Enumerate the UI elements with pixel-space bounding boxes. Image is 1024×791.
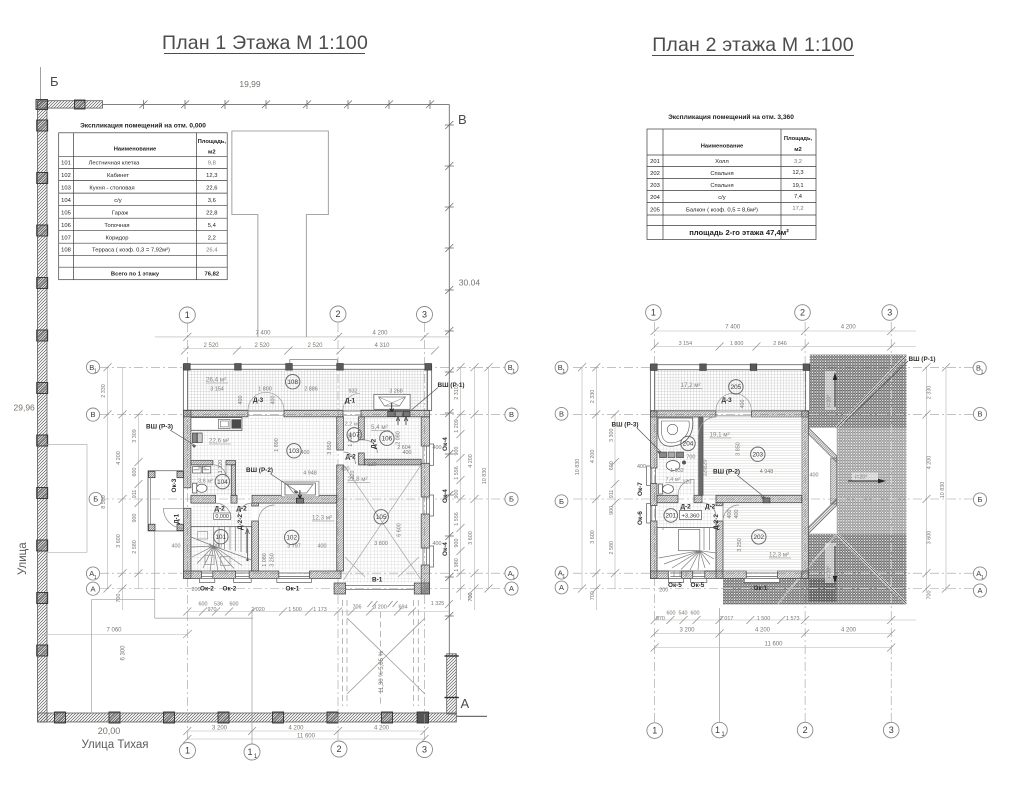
svg-text:Д-2: Д-2 [705, 504, 716, 511]
svg-text:3: 3 [422, 310, 427, 320]
svg-text:1: 1 [715, 725, 720, 735]
svg-text:1 320: 1 320 [218, 460, 224, 474]
svg-text:205: 205 [650, 208, 660, 214]
svg-text:970: 970 [208, 607, 217, 613]
svg-text:ВШ (Р-1): ВШ (Р-1) [909, 356, 936, 363]
svg-text:1 173: 1 173 [313, 607, 327, 613]
svg-text:м2: м2 [794, 147, 802, 153]
svg-text:540: 540 [679, 611, 688, 617]
svg-text:932: 932 [198, 465, 207, 471]
svg-text:900: 900 [454, 447, 460, 456]
svg-text:Д-2: Д-2 [237, 506, 248, 513]
svg-text:3 800: 3 800 [374, 541, 388, 547]
svg-text:400: 400 [301, 450, 310, 456]
svg-text:3 600: 3 600 [468, 531, 474, 545]
svg-text:3 600: 3 600 [927, 531, 933, 545]
svg-text:2,2 м²: 2,2 м² [345, 422, 360, 428]
svg-text:ВШ (Р-3): ВШ (Р-3) [146, 424, 173, 431]
svg-text:200: 200 [659, 588, 668, 594]
svg-text:11 600: 11 600 [765, 642, 784, 648]
svg-text:2 330: 2 330 [590, 390, 596, 404]
svg-text:А: А [977, 586, 982, 595]
svg-text:22,8: 22,8 [206, 210, 217, 216]
svg-text:7 400: 7 400 [725, 325, 741, 331]
svg-text:Ок-1: Ок-1 [286, 586, 300, 593]
svg-text:В: В [559, 409, 564, 418]
svg-text:Д-2: Д-2 [681, 504, 692, 511]
svg-text:400: 400 [172, 544, 181, 550]
svg-text:30.04: 30.04 [459, 278, 481, 288]
svg-text:Д-2-2: Д-2-2 [237, 514, 244, 530]
svg-text:3 600: 3 600 [116, 534, 122, 548]
svg-text:202: 202 [650, 171, 660, 177]
svg-text:3 797: 3 797 [287, 544, 301, 550]
svg-text:26,4 м²: 26,4 м² [206, 377, 226, 384]
svg-text:900: 900 [454, 539, 460, 548]
svg-text:Ок-6: Ок-6 [637, 511, 644, 525]
svg-text:400: 400 [734, 510, 740, 519]
svg-text:4 200: 4 200 [468, 454, 474, 468]
svg-text:1: 1 [94, 575, 97, 581]
svg-text:с/у: с/у [114, 198, 122, 204]
svg-text:Холл: Холл [715, 159, 729, 165]
svg-text:5,4 м²: 5,4 м² [371, 424, 388, 431]
svg-text:Терраса ( коэф. 0,3 = 7,92м²): Терраса ( коэф. 0,3 = 7,92м²) [92, 248, 170, 254]
svg-text:101: 101 [61, 161, 71, 167]
svg-text:Б: Б [978, 495, 983, 504]
svg-text:Кабинет: Кабинет [107, 173, 129, 179]
svg-text:106: 106 [382, 436, 393, 443]
svg-text:Улица: Улица [17, 542, 29, 575]
svg-text:1 500: 1 500 [757, 616, 771, 622]
svg-text:103: 103 [289, 448, 300, 455]
svg-text:105: 105 [61, 210, 71, 216]
svg-text:3 154: 3 154 [679, 341, 693, 347]
svg-text:1 326: 1 326 [348, 433, 354, 447]
svg-text:Ок-7: Ок-7 [637, 482, 644, 496]
svg-text:Д-3: Д-3 [253, 397, 264, 404]
svg-text:12,3 м²: 12,3 м² [312, 515, 332, 522]
svg-text:400: 400 [727, 510, 733, 519]
svg-text:29,96: 29,96 [14, 403, 36, 413]
svg-text:11,30 % 5,65 %: 11,30 % 5,65 % [379, 650, 385, 693]
svg-text:1: 1 [651, 308, 656, 318]
svg-text:Ок-4: Ок-4 [442, 542, 449, 556]
svg-text:102: 102 [61, 173, 71, 179]
svg-text:1 080: 1 080 [262, 553, 268, 567]
svg-text:204: 204 [650, 195, 660, 201]
svg-text:120: 120 [368, 462, 377, 468]
svg-text:1 890: 1 890 [274, 438, 280, 452]
svg-text:4 200: 4 200 [590, 450, 596, 464]
svg-text:700: 700 [927, 591, 933, 600]
svg-text:1 573: 1 573 [786, 616, 800, 622]
svg-text:600: 600 [132, 468, 138, 477]
svg-text:0,000: 0,000 [215, 514, 229, 520]
svg-text:1: 1 [94, 369, 97, 375]
svg-text:3 309: 3 309 [132, 429, 138, 443]
svg-text:10 830: 10 830 [482, 468, 488, 485]
svg-text:4 200: 4 200 [288, 726, 304, 732]
svg-text:203: 203 [650, 183, 660, 189]
svg-text:201: 201 [650, 159, 660, 165]
svg-text:1 325: 1 325 [431, 601, 445, 607]
svg-text:600: 600 [199, 602, 208, 608]
svg-text:2: 2 [336, 744, 341, 754]
svg-text:108: 108 [61, 248, 71, 254]
svg-text:i=20°: i=20° [827, 395, 833, 408]
svg-text:1 209: 1 209 [454, 419, 460, 433]
svg-text:11 600: 11 600 [297, 733, 316, 739]
svg-text:12,3: 12,3 [792, 170, 803, 176]
svg-text:3,6: 3,6 [208, 198, 216, 204]
svg-text:4 948: 4 948 [760, 469, 774, 475]
svg-text:3,6 м²: 3,6 м² [198, 479, 213, 485]
svg-text:2 604: 2 604 [397, 445, 411, 451]
svg-text:Д-2: Д-2 [215, 506, 226, 513]
svg-text:Наименование: Наименование [114, 147, 157, 153]
svg-text:103: 103 [61, 185, 71, 191]
svg-text:700: 700 [686, 455, 695, 461]
svg-text:3 850: 3 850 [327, 441, 333, 455]
svg-text:Ок-2: Ок-2 [223, 586, 237, 593]
svg-text:Д-2: Д-2 [346, 454, 357, 461]
svg-text:8 500: 8 500 [101, 495, 107, 509]
svg-text:4 200: 4 200 [372, 330, 388, 336]
svg-text:2: 2 [335, 309, 340, 319]
svg-text:108: 108 [287, 379, 298, 386]
svg-text:В: В [458, 112, 467, 127]
svg-text:4 200: 4 200 [374, 726, 390, 732]
svg-text:900: 900 [609, 506, 615, 515]
svg-text:1: 1 [512, 369, 515, 375]
svg-text:17,2 м²: 17,2 м² [681, 382, 701, 389]
svg-text:201: 201 [665, 513, 676, 520]
svg-text:Лестничная клетка: Лестничная клетка [89, 161, 141, 167]
svg-text:600: 600 [667, 611, 676, 617]
svg-text:4 200: 4 200 [841, 325, 857, 331]
svg-text:900: 900 [454, 490, 460, 499]
svg-text:7,4: 7,4 [794, 194, 803, 200]
svg-text:1: 1 [185, 310, 190, 320]
svg-text:6 300: 6 300 [121, 645, 127, 661]
svg-text:Д-1: Д-1 [174, 513, 181, 524]
svg-text:А: А [90, 584, 95, 593]
svg-text:2: 2 [800, 308, 805, 318]
svg-text:Гараж: Гараж [112, 210, 128, 216]
svg-text:400: 400 [637, 464, 646, 470]
svg-text:4 948: 4 948 [303, 471, 317, 477]
svg-text:1 500: 1 500 [288, 607, 302, 613]
svg-text:1: 1 [562, 574, 565, 580]
svg-text:3 250: 3 250 [737, 538, 743, 552]
svg-text:400: 400 [810, 473, 819, 479]
svg-text:Коридор: Коридор [106, 235, 129, 241]
svg-text:2 520: 2 520 [307, 343, 323, 349]
svg-text:4 200: 4 200 [755, 628, 771, 634]
svg-text:205: 205 [731, 384, 742, 391]
svg-text:120: 120 [702, 468, 708, 477]
svg-text:Ок-1: Ок-1 [754, 585, 768, 592]
svg-text:2 580: 2 580 [132, 540, 138, 554]
svg-text:700: 700 [116, 594, 122, 603]
svg-text:600: 600 [691, 611, 700, 617]
svg-text:2,2: 2,2 [208, 235, 216, 241]
svg-text:105: 105 [376, 514, 387, 521]
svg-text:101: 101 [215, 534, 226, 541]
svg-text:19,1 м²: 19,1 м² [710, 432, 730, 439]
svg-text:2 886: 2 886 [304, 387, 318, 393]
svg-text:3 250: 3 250 [270, 553, 276, 567]
svg-text:106: 106 [61, 223, 71, 229]
svg-text:911: 911 [132, 490, 138, 499]
svg-text:17,2: 17,2 [792, 206, 803, 212]
svg-text:Б: Б [509, 495, 514, 504]
svg-text:1 556: 1 556 [454, 466, 460, 480]
svg-text:4 200: 4 200 [116, 451, 122, 465]
svg-text:120: 120 [702, 460, 708, 469]
svg-text:Ок-4: Ок-4 [442, 437, 449, 451]
svg-text:3: 3 [422, 745, 427, 755]
svg-text:Д-2: Д-2 [371, 438, 378, 449]
svg-text:1: 1 [185, 746, 190, 756]
svg-text:600: 600 [230, 602, 239, 608]
svg-text:4 200: 4 200 [841, 628, 857, 634]
svg-text:В: В [90, 410, 95, 419]
svg-text:Спальня: Спальня [710, 171, 733, 177]
svg-text:9,8: 9,8 [208, 161, 216, 167]
svg-text:400: 400 [318, 544, 327, 550]
svg-text:694: 694 [399, 605, 408, 611]
svg-text:1 800: 1 800 [730, 341, 744, 347]
svg-text:400: 400 [433, 445, 442, 451]
svg-text:+3,360: +3,360 [682, 513, 700, 519]
svg-text:Ок-5: Ок-5 [691, 582, 705, 589]
svg-text:3 200: 3 200 [679, 628, 695, 634]
svg-text:1: 1 [512, 575, 515, 581]
svg-text:Топочная: Топочная [104, 223, 129, 229]
svg-text:3 154: 3 154 [210, 387, 224, 393]
svg-text:В: В [977, 410, 982, 419]
svg-text:Улица Тихая: Улица Тихая [81, 739, 148, 751]
svg-text:Площадь,: Площадь, [198, 139, 227, 145]
svg-text:2 330: 2 330 [927, 386, 933, 400]
svg-text:4 310: 4 310 [374, 343, 390, 349]
svg-text:1: 1 [562, 369, 565, 375]
svg-text:Ок-4: Ок-4 [442, 489, 449, 503]
svg-text:400: 400 [271, 396, 277, 405]
svg-text:ВШ (Р-3): ВШ (Р-3) [612, 422, 639, 429]
svg-text:204: 204 [683, 441, 694, 448]
svg-text:2 580: 2 580 [609, 541, 615, 555]
svg-text:2: 2 [803, 725, 808, 735]
svg-text:104: 104 [61, 198, 71, 204]
svg-text:Наименование: Наименование [701, 144, 744, 150]
svg-text:400: 400 [740, 400, 746, 409]
svg-text:Б: Б [93, 495, 98, 504]
svg-text:Экспликация помещений на отм.: Экспликация помещений на отм. 0,000 [80, 122, 206, 130]
svg-text:102: 102 [286, 535, 297, 542]
svg-text:Б: Б [559, 497, 564, 506]
svg-text:400: 400 [433, 541, 442, 547]
svg-text:2 846: 2 846 [773, 341, 787, 347]
svg-text:1: 1 [981, 369, 984, 375]
svg-text:м2: м2 [208, 150, 216, 156]
svg-text:706: 706 [353, 605, 362, 611]
svg-text:120: 120 [350, 471, 356, 480]
svg-text:2 330: 2 330 [101, 384, 107, 398]
svg-text:1: 1 [652, 726, 657, 736]
svg-text:i=20°: i=20° [855, 475, 868, 481]
svg-text:10 830: 10 830 [940, 482, 946, 499]
svg-text:12,3: 12,3 [206, 173, 217, 179]
svg-text:932: 932 [349, 389, 358, 395]
svg-text:2 080: 2 080 [396, 431, 402, 445]
svg-text:1 980: 1 980 [454, 558, 460, 572]
svg-text:А: А [559, 583, 564, 592]
svg-text:ВШ (Р-2): ВШ (Р-2) [246, 467, 273, 474]
svg-text:1 932: 1 932 [670, 468, 684, 474]
svg-text:Балкон ( коэф. 0,5 = 8,6м²): Балкон ( коэф. 0,5 = 8,6м²) [686, 208, 758, 214]
svg-text:Б: Б [50, 74, 59, 89]
svg-text:3 200: 3 200 [373, 605, 387, 611]
svg-text:970: 970 [656, 616, 665, 622]
svg-text:Всего по 1 этажу: Всего по 1 этажу [111, 272, 160, 278]
svg-text:700: 700 [468, 593, 474, 602]
svg-text:Ок-5: Ок-5 [668, 582, 682, 589]
svg-text:19,1: 19,1 [792, 183, 803, 189]
svg-text:3 200: 3 200 [212, 726, 228, 732]
svg-text:3: 3 [889, 725, 894, 735]
svg-text:3 850: 3 850 [736, 442, 742, 456]
svg-text:1 556: 1 556 [454, 512, 460, 526]
svg-text:120: 120 [682, 480, 691, 486]
svg-text:План 1 Этажа М 1:100: План 1 Этажа М 1:100 [162, 32, 368, 54]
svg-text:3 268: 3 268 [389, 389, 403, 395]
svg-text:Ок-3: Ок-3 [171, 478, 178, 492]
svg-text:Экспликация помещений на отм.: Экспликация помещений на отм. 3,360 [668, 113, 794, 121]
svg-text:Кухня - столовая: Кухня - столовая [89, 185, 134, 191]
svg-text:400: 400 [341, 467, 350, 473]
svg-text:900: 900 [132, 514, 138, 523]
svg-text:ВШ (Р-1): ВШ (Р-1) [438, 382, 465, 389]
svg-text:Площадь,: Площадь, [784, 136, 813, 142]
svg-text:площадь 2-го этажа 47,4м²: площадь 2-го этажа 47,4м² [689, 228, 789, 237]
svg-text:3: 3 [887, 308, 892, 318]
svg-text:26,4: 26,4 [206, 248, 218, 254]
svg-text:10 830: 10 830 [575, 459, 581, 476]
svg-text:А: А [509, 584, 514, 593]
svg-text:В-1: В-1 [372, 577, 383, 584]
svg-text:1: 1 [981, 575, 984, 581]
svg-text:Д-3: Д-3 [722, 397, 733, 404]
svg-text:В: В [509, 410, 514, 419]
svg-text:202: 202 [753, 534, 764, 541]
svg-text:План 2 этажа М 1:100: План 2 этажа М 1:100 [652, 34, 854, 56]
svg-text:с/у: с/у [718, 195, 726, 201]
svg-text:2 520: 2 520 [254, 343, 270, 349]
svg-text:3 000: 3 000 [208, 544, 222, 550]
svg-text:3,2: 3,2 [794, 159, 802, 165]
svg-text:22,6 м²: 22,6 м² [209, 438, 229, 445]
svg-text:3 600: 3 600 [590, 530, 596, 544]
svg-text:А: А [461, 696, 470, 711]
svg-text:7 060: 7 060 [106, 628, 122, 634]
svg-text:700: 700 [590, 591, 596, 600]
svg-text:22,6: 22,6 [206, 185, 217, 191]
svg-text:2 020: 2 020 [251, 607, 265, 613]
svg-text:76,82: 76,82 [205, 272, 220, 278]
svg-text:4 200: 4 200 [927, 456, 933, 470]
svg-text:400: 400 [238, 396, 244, 405]
svg-text:20,00: 20,00 [98, 726, 121, 736]
svg-text:5,4: 5,4 [208, 223, 217, 229]
svg-text:203: 203 [752, 452, 763, 459]
svg-text:Спальня: Спальня [710, 183, 733, 189]
svg-text:Д-2-2: Д-2-2 [713, 514, 720, 530]
svg-text:1 800: 1 800 [258, 387, 272, 393]
svg-text:i=20°: i=20° [827, 566, 833, 579]
svg-text:104: 104 [217, 479, 228, 486]
svg-text:ВШ (Р-2): ВШ (Р-2) [713, 469, 740, 476]
svg-text:Ок-2: Ок-2 [200, 586, 214, 593]
svg-text:1: 1 [247, 747, 252, 757]
svg-text:3 300: 3 300 [609, 429, 615, 443]
svg-text:2 520: 2 520 [203, 343, 219, 349]
svg-text:6 600: 6 600 [397, 523, 403, 537]
svg-text:107: 107 [61, 235, 71, 241]
svg-text:19,99: 19,99 [239, 79, 261, 89]
svg-text:Д-1: Д-1 [345, 398, 356, 405]
svg-text:12,3 м²: 12,3 м² [769, 552, 789, 559]
svg-text:911: 911 [609, 490, 615, 499]
svg-text:2 017: 2 017 [720, 616, 734, 622]
